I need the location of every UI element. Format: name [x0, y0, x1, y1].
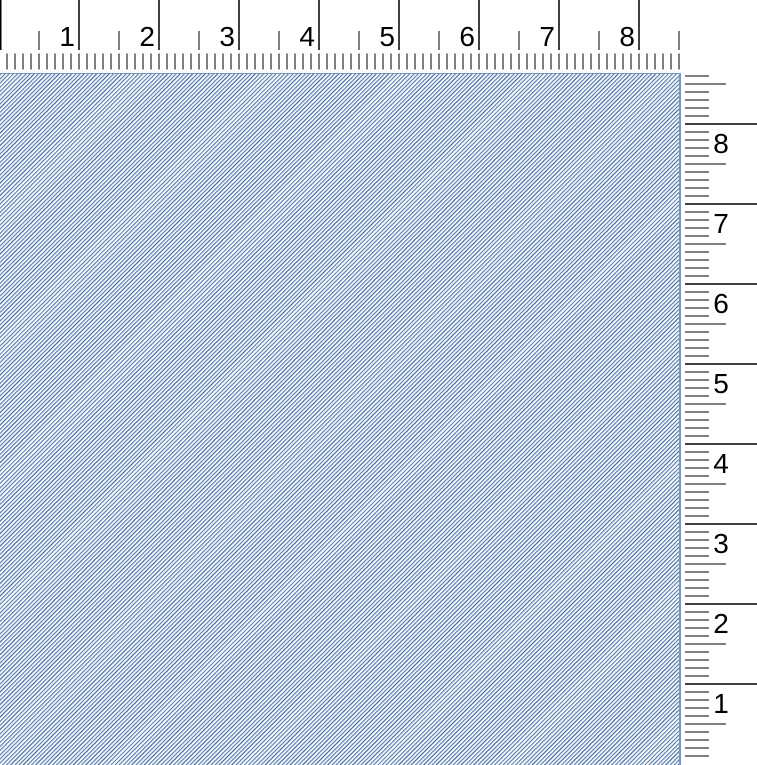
horizontal-ruler[interactable]: 12345678	[0, 0, 683, 73]
v-ruler-unit-label: 3	[713, 528, 729, 559]
horizontal-ruler-ticks: 12345678	[0, 0, 683, 73]
v-ruler-unit-label: 7	[713, 208, 729, 239]
v-ruler-unit-label: 2	[713, 608, 729, 639]
workspace: 12345678 12345678	[0, 0, 757, 765]
h-ruler-unit-label: 5	[379, 21, 395, 52]
h-ruler-unit-label: 1	[59, 21, 75, 52]
h-ruler-unit-label: 2	[139, 21, 155, 52]
h-ruler-unit-label: 6	[459, 21, 475, 52]
v-ruler-unit-label: 1	[713, 688, 729, 719]
vertical-ruler[interactable]: 12345678	[683, 72, 757, 765]
vertical-ruler-ticks: 12345678	[683, 72, 757, 765]
v-ruler-unit-label: 6	[713, 288, 729, 319]
v-ruler-unit-label: 5	[713, 368, 729, 399]
ruler-corner	[683, 0, 757, 72]
v-ruler-unit-label: 4	[713, 448, 729, 479]
h-ruler-unit-label: 8	[619, 21, 635, 52]
h-ruler-unit-label: 4	[299, 21, 315, 52]
h-ruler-unit-label: 7	[539, 21, 555, 52]
h-ruler-unit-label: 3	[219, 21, 235, 52]
drawing-canvas[interactable]	[0, 73, 681, 765]
v-ruler-unit-label: 8	[713, 128, 729, 159]
